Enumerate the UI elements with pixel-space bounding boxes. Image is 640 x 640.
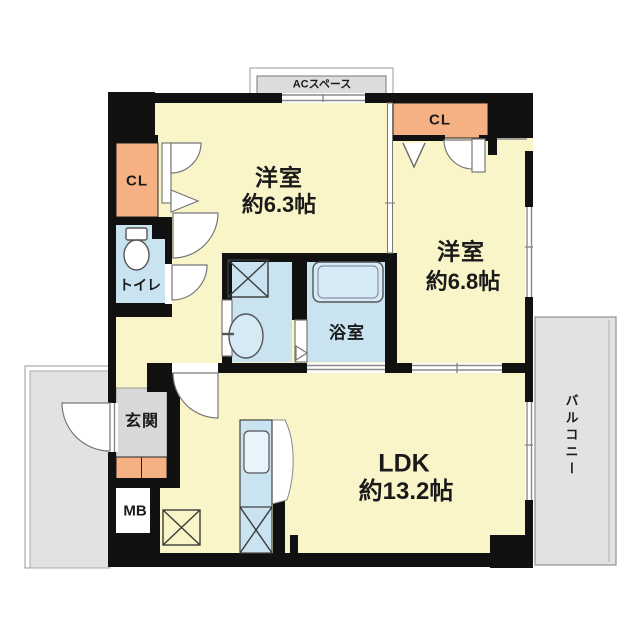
toilet-label: トイレ bbox=[119, 278, 161, 292]
floorplan: ACスペース CL CL 洋室 約6.3帖 洋室 約6.8帖 トイレ 浴室 玄関… bbox=[0, 0, 640, 640]
kitchen-sink bbox=[244, 431, 269, 473]
closet1-door-leaf bbox=[162, 143, 171, 203]
bathroom-label: 浴室 bbox=[329, 325, 365, 342]
room2-door-leaf bbox=[472, 139, 485, 172]
ldk-door-opening bbox=[172, 363, 218, 373]
ldk-window bbox=[525, 402, 533, 500]
ldk-size-label: 約13.2帖 bbox=[359, 480, 454, 504]
room2-name-label: 洋室 bbox=[437, 241, 485, 264]
floorplan-drawing bbox=[0, 0, 640, 640]
ac-space-label: ACスペース bbox=[293, 80, 352, 91]
bathroom-folding-door bbox=[295, 320, 307, 362]
bathroom-threshold bbox=[307, 363, 385, 373]
room2-window bbox=[525, 207, 533, 297]
closet2-label: CL bbox=[429, 113, 451, 128]
corridor-floor bbox=[30, 371, 110, 568]
toilet-door-opening bbox=[165, 264, 172, 304]
shoe-cabinet bbox=[116, 457, 167, 480]
closet1-label: CL bbox=[126, 174, 148, 189]
room2-size-label: 約6.8帖 bbox=[426, 271, 501, 293]
genkan-label: 玄関 bbox=[125, 414, 159, 430]
ac-window bbox=[282, 93, 365, 103]
balcony-label: バルコニー bbox=[565, 394, 578, 479]
toilet-fixture bbox=[124, 228, 149, 270]
common-corridor bbox=[25, 366, 110, 568]
bathtub-fixture bbox=[313, 262, 383, 302]
room2-ldk-sliding-door bbox=[412, 363, 502, 373]
mb-label: MB bbox=[123, 504, 146, 519]
ldk-name-label: LDK bbox=[378, 452, 429, 477]
room1-name-label: 洋室 bbox=[255, 167, 303, 190]
room1-size-label: 約6.3帖 bbox=[242, 194, 317, 216]
